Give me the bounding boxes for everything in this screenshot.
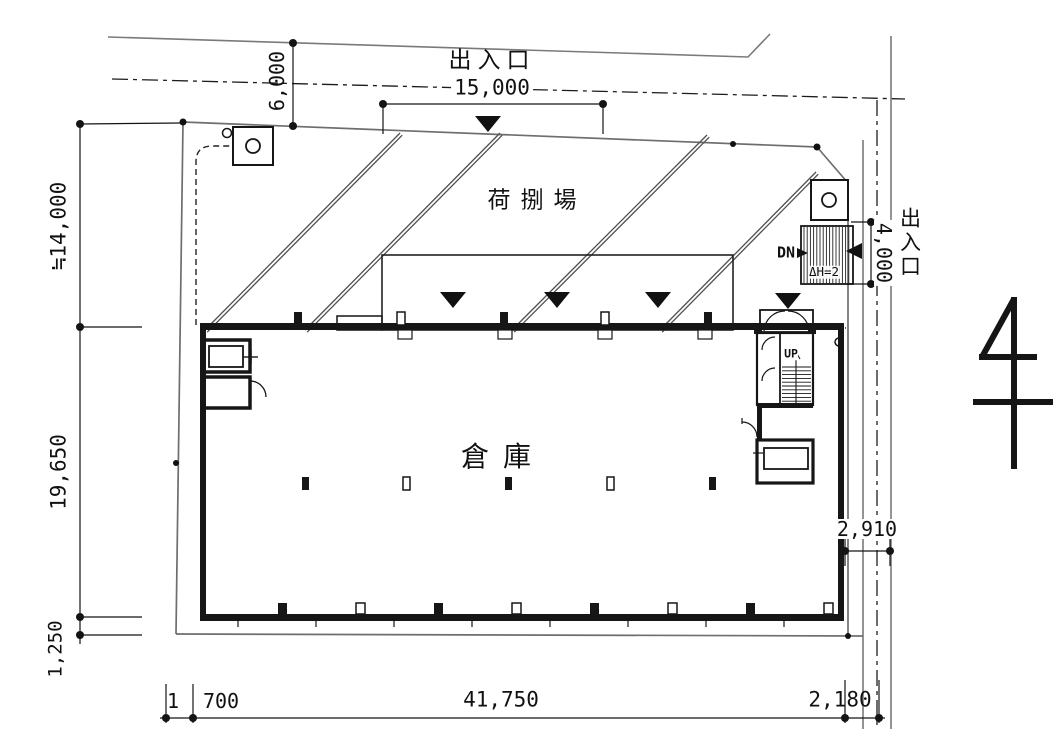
north-arrow-icon	[973, 297, 1053, 469]
dim-building-length: 41,750	[463, 690, 539, 711]
dim-site-west-lower: 1,250	[47, 620, 66, 677]
setback-dashed-lines	[196, 146, 846, 328]
plan-linework	[0, 0, 1063, 729]
loading-area-label: 荷捌場	[488, 190, 587, 213]
dim-entrance-right-width: 4,000	[874, 220, 894, 286]
site-plan-drawing: 出入口 15,000 6,000 荷捌場 倉庫 ≒14,000 19,650 1…	[0, 0, 1063, 729]
entrance-top-label: 出入口	[449, 50, 536, 73]
utility-post-northwest	[223, 127, 274, 165]
dim-site-west-upper: ≒14,000	[49, 182, 70, 271]
dim-entrance-top-width: 15,000	[451, 78, 533, 99]
dim-south-offset-left-a: 1	[167, 691, 179, 711]
dim-site-west-middle: 19,650	[49, 434, 70, 510]
northeast-room	[742, 418, 813, 483]
entrance-right-label: 出入口	[899, 207, 920, 279]
stair-up-label: UP	[784, 348, 798, 360]
ramp-down-label: DN	[777, 246, 795, 261]
dim-south-offset-left-b: 700	[203, 691, 239, 711]
dim-south-offset-right: 2,180	[808, 690, 871, 711]
dim-side-road-width: 2,910	[834, 519, 900, 539]
interior-columns	[302, 477, 716, 490]
height-difference-label: ΔH=2	[808, 266, 840, 279]
canopy-lines	[205, 133, 818, 332]
north-wall-door-notches	[398, 330, 712, 339]
northwest-rooms	[204, 340, 266, 408]
warehouse-label: 倉庫	[461, 443, 545, 471]
dim-front-road-width: 6,000	[267, 51, 287, 111]
